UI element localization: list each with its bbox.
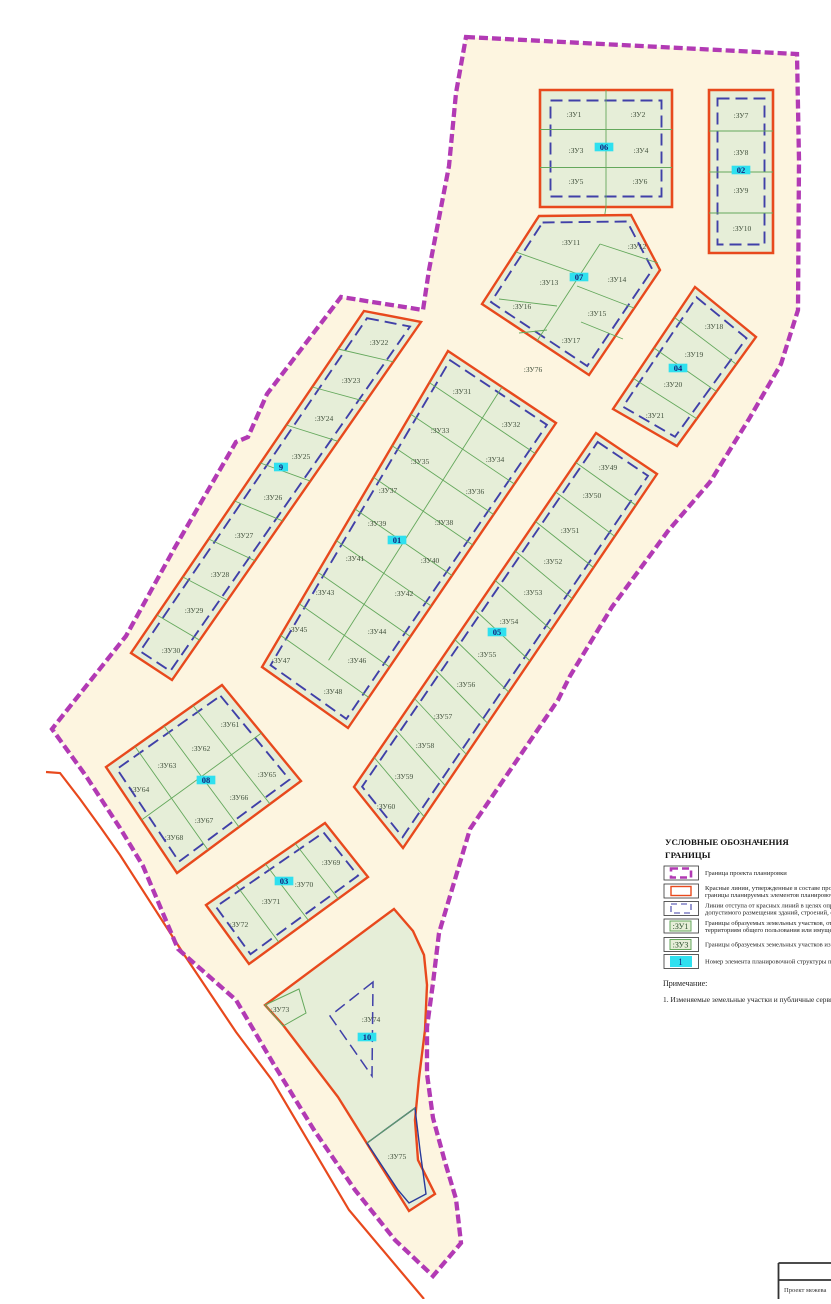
svg-text::ЗУ31: :ЗУ31: [453, 387, 472, 396]
svg-text::ЗУ11: :ЗУ11: [562, 238, 580, 247]
svg-text::ЗУ34: :ЗУ34: [486, 455, 505, 464]
svg-text::ЗУ14: :ЗУ14: [608, 275, 627, 284]
svg-text:01: 01: [393, 535, 402, 545]
svg-text::ЗУ16: :ЗУ16: [513, 302, 532, 311]
svg-text::ЗУ40: :ЗУ40: [421, 556, 440, 565]
svg-text::ЗУ68: :ЗУ68: [165, 833, 184, 842]
svg-text::ЗУ57: :ЗУ57: [434, 712, 453, 721]
svg-text::ЗУ73: :ЗУ73: [271, 1005, 290, 1014]
svg-text::ЗУ62: :ЗУ62: [192, 744, 211, 753]
svg-text::ЗУ6: :ЗУ6: [633, 177, 648, 186]
svg-text:УСЛОВНЫЕ ОБОЗНАЧЕНИЯ: УСЛОВНЫЕ ОБОЗНАЧЕНИЯ: [665, 837, 789, 847]
svg-text::ЗУ1: :ЗУ1: [567, 110, 582, 119]
svg-text::ЗУ47: :ЗУ47: [272, 656, 291, 665]
svg-text::ЗУ3: :ЗУ3: [673, 941, 689, 950]
svg-text:Границы образуемых земельных у: Границы образуемых земельных участков, о…: [705, 920, 831, 927]
svg-text::ЗУ19: :ЗУ19: [685, 350, 704, 359]
svg-text::ЗУ60: :ЗУ60: [377, 802, 396, 811]
svg-text:территориям общего пользования: территориям общего пользования или имуще: [705, 927, 831, 934]
svg-text::ЗУ42: :ЗУ42: [395, 589, 414, 598]
svg-text::ЗУ64: :ЗУ64: [131, 785, 150, 794]
svg-text::ЗУ46: :ЗУ46: [348, 656, 367, 665]
svg-text::ЗУ24: :ЗУ24: [315, 414, 334, 423]
svg-text::ЗУ58: :ЗУ58: [416, 741, 435, 750]
svg-text::ЗУ21: :ЗУ21: [646, 411, 665, 420]
svg-text::ЗУ27: :ЗУ27: [235, 531, 254, 540]
svg-text::ЗУ3: :ЗУ3: [569, 146, 584, 155]
svg-text::ЗУ33: :ЗУ33: [431, 426, 450, 435]
svg-text::ЗУ61: :ЗУ61: [221, 720, 240, 729]
svg-text::ЗУ32: :ЗУ32: [502, 420, 521, 429]
svg-text::ЗУ39: :ЗУ39: [368, 519, 387, 528]
svg-text:1: 1: [678, 957, 683, 967]
svg-text::ЗУ63: :ЗУ63: [158, 761, 177, 770]
svg-text::ЗУ49: :ЗУ49: [599, 463, 618, 472]
svg-text::ЗУ54: :ЗУ54: [500, 617, 519, 626]
svg-text::ЗУ66: :ЗУ66: [230, 793, 249, 802]
svg-text::ЗУ22: :ЗУ22: [370, 338, 389, 347]
svg-text::ЗУ20: :ЗУ20: [664, 380, 683, 389]
svg-text:Проект межева: Проект межева: [784, 1287, 827, 1294]
svg-text:02: 02: [737, 165, 746, 175]
svg-text::ЗУ71: :ЗУ71: [262, 897, 281, 906]
svg-text::ЗУ53: :ЗУ53: [524, 588, 543, 597]
svg-text:границы планируемых элементов: границы планируемых элементов планировоч: [705, 892, 831, 899]
svg-text:03: 03: [280, 876, 289, 886]
svg-text::ЗУ5: :ЗУ5: [569, 177, 584, 186]
svg-text::ЗУ55: :ЗУ55: [478, 650, 497, 659]
svg-text:допустимого размещения зданий,: допустимого размещения зданий, строений,…: [705, 910, 831, 917]
svg-text::ЗУ13: :ЗУ13: [540, 278, 559, 287]
svg-text::ЗУ51: :ЗУ51: [561, 526, 580, 535]
svg-text::ЗУ48: :ЗУ48: [324, 687, 343, 696]
svg-text::ЗУ15: :ЗУ15: [588, 309, 607, 318]
svg-text::ЗУ7: :ЗУ7: [734, 111, 749, 120]
svg-text::ЗУ41: :ЗУ41: [346, 554, 365, 563]
svg-text::ЗУ74: :ЗУ74: [362, 1015, 381, 1024]
svg-text::ЗУ17: :ЗУ17: [562, 336, 581, 345]
svg-text::ЗУ30: :ЗУ30: [162, 646, 181, 655]
svg-text:1. Изменяемые земельные участк: 1. Изменяемые земельные участки и публич…: [663, 995, 831, 1004]
svg-text::ЗУ10: :ЗУ10: [733, 224, 752, 233]
svg-text::ЗУ8: :ЗУ8: [734, 148, 749, 157]
svg-text::ЗУ25: :ЗУ25: [292, 452, 311, 461]
svg-text:10: 10: [363, 1032, 372, 1042]
svg-text::ЗУ59: :ЗУ59: [395, 772, 414, 781]
svg-text:05: 05: [493, 627, 502, 637]
svg-text::ЗУ35: :ЗУ35: [411, 457, 430, 466]
svg-text::ЗУ2: :ЗУ2: [631, 110, 646, 119]
svg-text::ЗУ43: :ЗУ43: [316, 588, 335, 597]
svg-text::ЗУ18: :ЗУ18: [705, 322, 724, 331]
svg-text::ЗУ4: :ЗУ4: [634, 146, 649, 155]
svg-text:04: 04: [674, 363, 683, 373]
svg-text::ЗУ56: :ЗУ56: [457, 680, 476, 689]
svg-text::ЗУ36: :ЗУ36: [466, 487, 485, 496]
svg-text:Красные линии, утвержденные в: Красные линии, утвержденные в составе пр…: [705, 885, 831, 892]
svg-text::ЗУ65: :ЗУ65: [258, 770, 277, 779]
svg-text::ЗУ12: :ЗУ12: [628, 242, 647, 251]
svg-text::ЗУ23: :ЗУ23: [342, 376, 361, 385]
svg-text::ЗУ52: :ЗУ52: [544, 557, 563, 566]
svg-text::ЗУ67: :ЗУ67: [195, 816, 214, 825]
svg-text:Линии отступа от красных линий: Линии отступа от красных линий в целях о…: [705, 903, 831, 910]
svg-text::ЗУ75: :ЗУ75: [388, 1152, 407, 1161]
svg-text:Примечание:: Примечание:: [663, 979, 707, 988]
svg-text::ЗУ1: :ЗУ1: [673, 922, 689, 931]
svg-text::ЗУ76: :ЗУ76: [524, 365, 543, 374]
svg-text::ЗУ50: :ЗУ50: [583, 491, 602, 500]
svg-text:07: 07: [575, 272, 584, 282]
svg-text:08: 08: [202, 775, 211, 785]
svg-text:ГРАНИЦЫ: ГРАНИЦЫ: [665, 850, 711, 860]
svg-text::ЗУ29: :ЗУ29: [185, 606, 204, 615]
svg-text::ЗУ28: :ЗУ28: [211, 570, 230, 579]
svg-text::ЗУ45: :ЗУ45: [289, 625, 308, 634]
svg-text:Граница проекта планировки: Граница проекта планировки: [705, 870, 787, 877]
svg-text:Границы образуемых земельных у: Границы образуемых земельных участков из…: [705, 942, 831, 949]
svg-text:Номер элемента планировочной с: Номер элемента планировочной структуры п…: [705, 959, 831, 966]
svg-text:06: 06: [600, 142, 609, 152]
svg-text::ЗУ38: :ЗУ38: [435, 518, 454, 527]
svg-text:9: 9: [279, 462, 283, 472]
svg-text::ЗУ9: :ЗУ9: [734, 186, 749, 195]
svg-text::ЗУ69: :ЗУ69: [322, 858, 341, 867]
svg-text::ЗУ72: :ЗУ72: [230, 920, 249, 929]
svg-text::ЗУ37: :ЗУ37: [379, 486, 398, 495]
svg-text::ЗУ26: :ЗУ26: [264, 493, 283, 502]
svg-text::ЗУ44: :ЗУ44: [368, 627, 387, 636]
svg-text::ЗУ70: :ЗУ70: [295, 880, 314, 889]
